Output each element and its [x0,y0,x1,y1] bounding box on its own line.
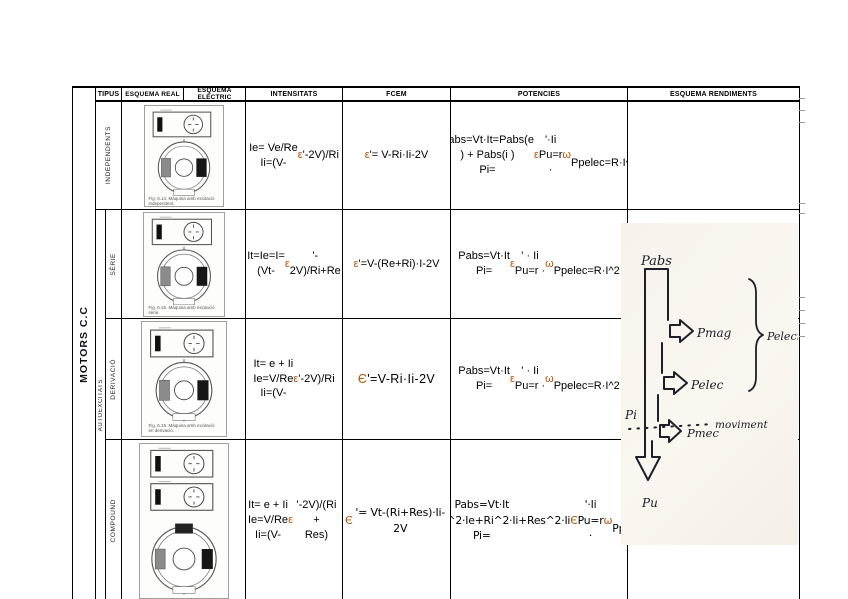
row-serie-fcem: ε'=V-(Re+Ri)·I-2V [343,210,451,319]
figure-caption: Fig. 6.15. Màquina amb excitació en deri… [149,424,219,434]
gridline-stub [799,297,805,298]
pelec-arrow-icon [664,372,687,394]
header-intensitats: INTENSITATS [246,88,343,102]
power-flow-diagram: Pabs Pmag Pelecmag Pelec Pi moviment Pme… [621,223,798,545]
gridline-stub [799,323,805,324]
label-pmec: Pmec [686,426,719,440]
group-cell-autoexcitats: AUTOEXCITATS [96,210,106,599]
row-derivacio-fcem: Є'=V-Ri·Ii-2V [343,319,451,440]
pmag-arrow-icon [670,320,693,342]
row-independents-potencies: Pabs=Vt·It=Pabs(e ) + Pabs(i ) Pi=ε'·Ii … [451,102,628,210]
group-cell-motors-cc: MOTORS C.C [73,88,96,599]
header-potencies: POTENCIES [451,88,628,102]
gridline-stub [799,213,805,214]
header-tipus: TIPUS [96,88,122,102]
pabs-arrow-shaft [645,269,668,457]
row-compound-fcem: Є'= Vt-(Ri+Res)·Ii-2V [343,440,451,599]
row-compound-potencies: Pabs=Vt·It Pabs=Red^2·Ie+Ri^2·Ii+Res^2·I… [451,440,628,599]
row-compound-esquema: Fig. 6.16. Màquina elèctrica amb excitac… [122,440,246,599]
label-pi: Pi [624,408,637,422]
row-independents-esquema: Fig. 6.14. Màquina amb excitació indepen… [122,102,246,210]
label-moviment: moviment [715,419,769,431]
row-serie-intensitats: It=Ie=I=(Vt-ε'- 2V)/Ri+Re [246,210,343,319]
rendiments-scan: Pabs Pmag Pelecmag Pelec Pi moviment Pme… [621,223,798,545]
motors-cc-label: MOTORS C.C [78,306,90,383]
pu-arrowhead-icon [636,441,660,480]
motor-figure-compound [143,446,225,599]
gridline-stub [799,336,805,337]
label-pu: Pu [641,496,658,510]
row-derivacio-tipus: DERIVACIÓ [106,319,122,440]
motor-figure-independent [148,108,220,196]
row-serie-tipus: SÈRIE [106,210,122,319]
header-esquema-real: ESQUEMA REAL [122,88,184,102]
gridline-stub [799,122,805,123]
gridline-stub [799,98,805,99]
gridline-stub [799,203,805,204]
gridline-stub [799,110,805,111]
brace-icon [749,279,763,391]
label-pabs: Pabs [640,254,672,269]
motors-table: MOTORS C.C TIPUS ESQUEMA REAL ESQUEMA EL… [72,86,800,599]
motor-figure-serie [147,215,221,306]
row-serie-esquema: Fig. 6.15. Màquina amb excitació sèrie. [122,210,246,319]
row-independents-rendiments-empty [628,102,800,210]
label-pelec: Pelec [690,378,724,392]
row-derivacio-potencies: Pabs=Vt·It Pi=ε' · Ii Pu=r · ω Ppelec=R·… [451,319,628,440]
row-independents-fcem: ε'= V-Ri·Ii-2V [343,102,451,210]
label-pelecmag: Pelecmag [766,330,798,343]
row-derivacio-intensitats: It= e + Ii Ie=V/Re Ii=(V-ε'-2V)/Ri [246,319,343,440]
header-esquema-electric: ESQUEMA ELÈCTRIC [184,88,246,102]
header-fcem: FCEM [343,88,451,102]
row-independents-tipus: INDEPENDENTS [96,102,122,210]
label-pmag: Pmag [696,326,732,340]
row-compound-tipus: COMPOUND [106,440,122,599]
row-compound-intensitats: It= e + Ii Ie=V/Re Ii=(V-ε'-2V)/(Ri + Re… [246,440,343,599]
pmec-arrow-icon [660,420,681,442]
figure-caption: Fig. 6.15. Màquina amb excitació sèrie. [149,306,219,316]
row-serie-potencies: Pabs=Vt·It Pi=ε' · Ii Pu=r · ω Ppelec=R·… [451,210,628,319]
row-independents-intensitats: Ie= Ve/Re Ii=(V-ε'-2V)/Ri [246,102,343,210]
header-esquema-rendiments: ESQUEMA RENDIMENTS [628,88,800,102]
gridline-stub [799,310,805,311]
row-derivacio-esquema: Fig. 6.15. Màquina amb excitació en deri… [122,319,246,440]
figure-caption: Fig. 6.14. Màquina amb excitació indepen… [149,197,219,207]
motor-figure-derivacio [145,324,223,423]
page: MOTORS C.C TIPUS ESQUEMA REAL ESQUEMA EL… [0,0,848,599]
